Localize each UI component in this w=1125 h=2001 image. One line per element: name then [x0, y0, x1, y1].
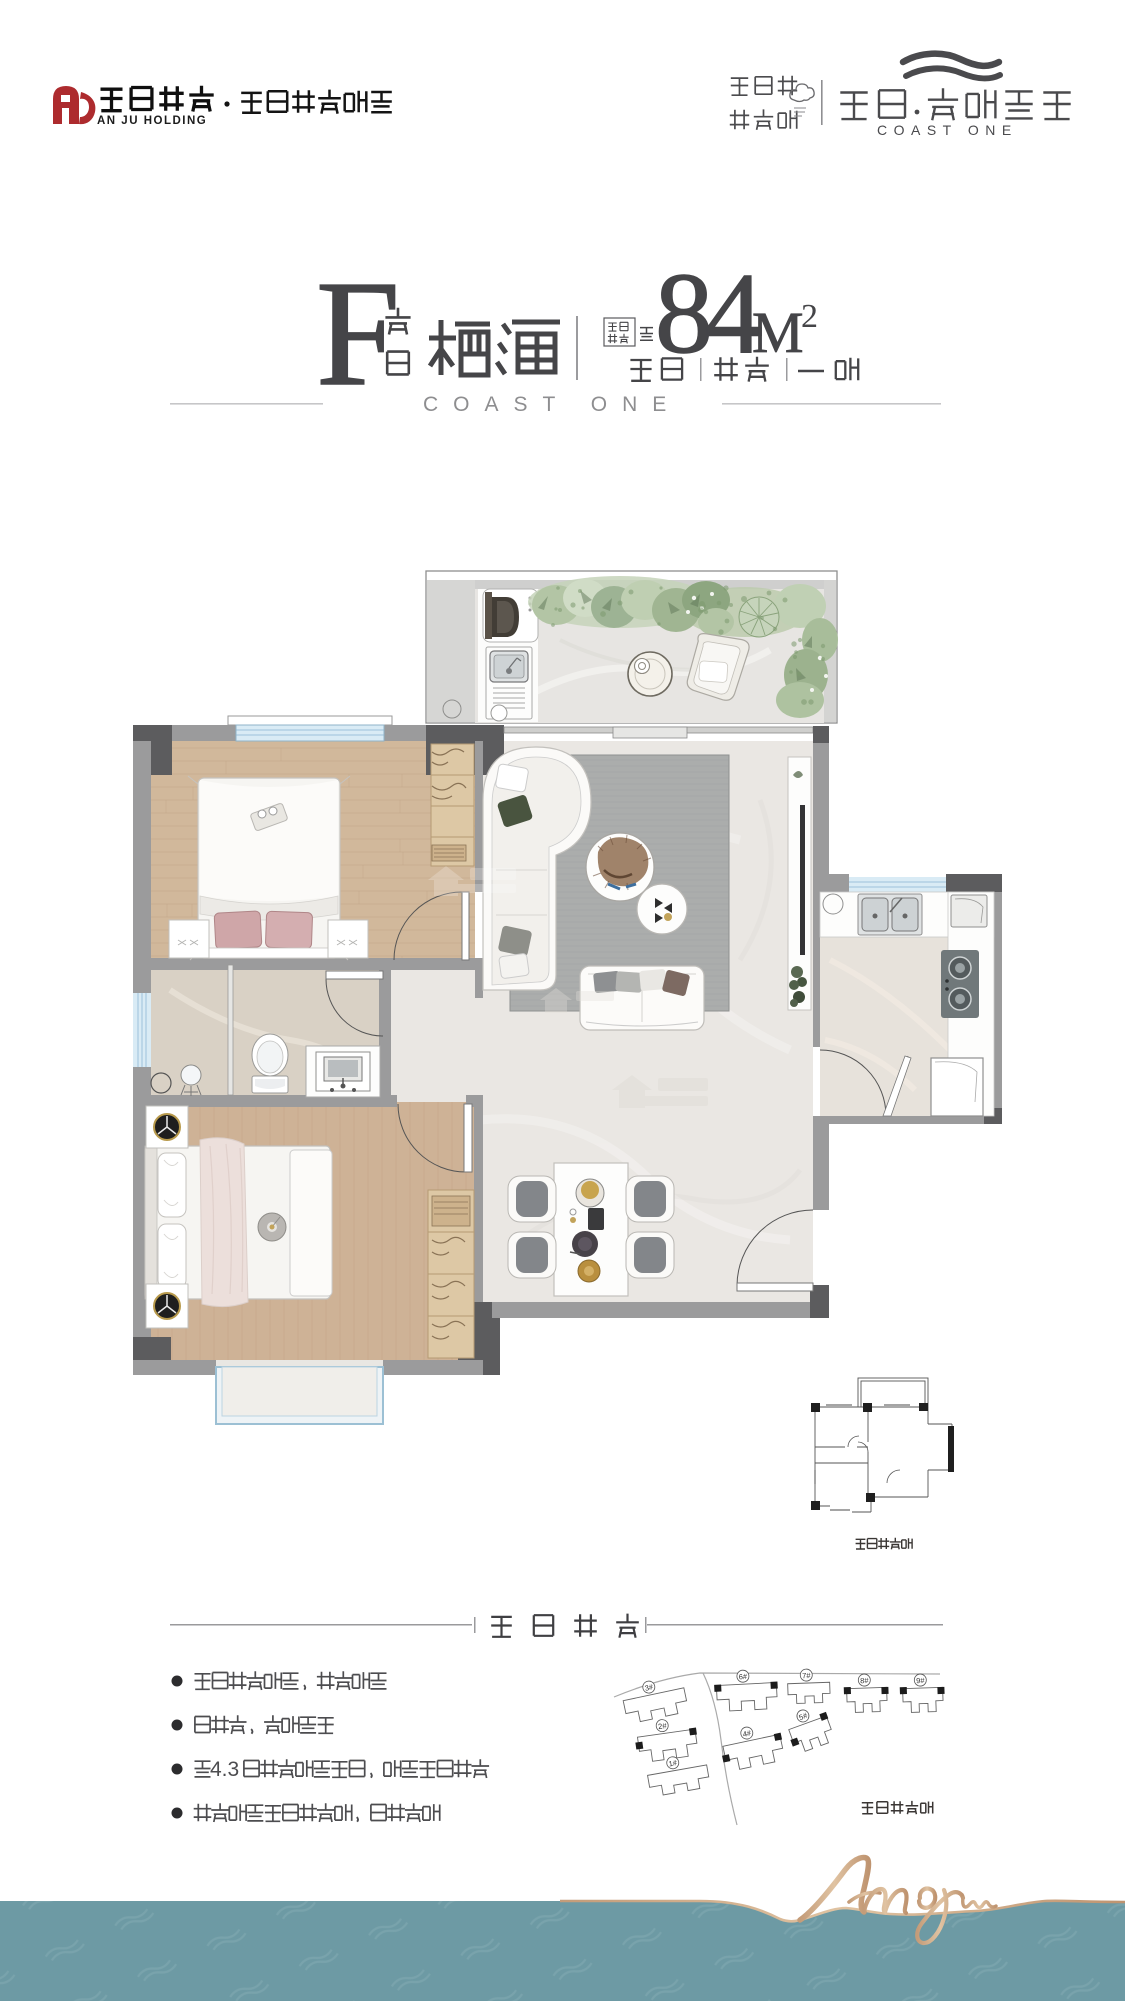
svg-text:AN JU HOLDING: AN JU HOLDING [97, 115, 207, 127]
svg-text:COAST ONE: COAST ONE [877, 122, 1018, 138]
svg-text:4.3: 4.3 [210, 1758, 239, 1781]
svg-text:8#: 8# [860, 1676, 869, 1685]
svg-text:6#: 6# [739, 1672, 749, 1681]
svg-text:COAST ONE: COAST ONE [423, 393, 681, 416]
svg-text:F: F [316, 249, 400, 417]
svg-text:2: 2 [801, 298, 818, 335]
svg-text:7#: 7# [802, 1671, 811, 1680]
svg-text:9#: 9# [916, 1676, 925, 1685]
svg-text:M: M [752, 300, 804, 365]
